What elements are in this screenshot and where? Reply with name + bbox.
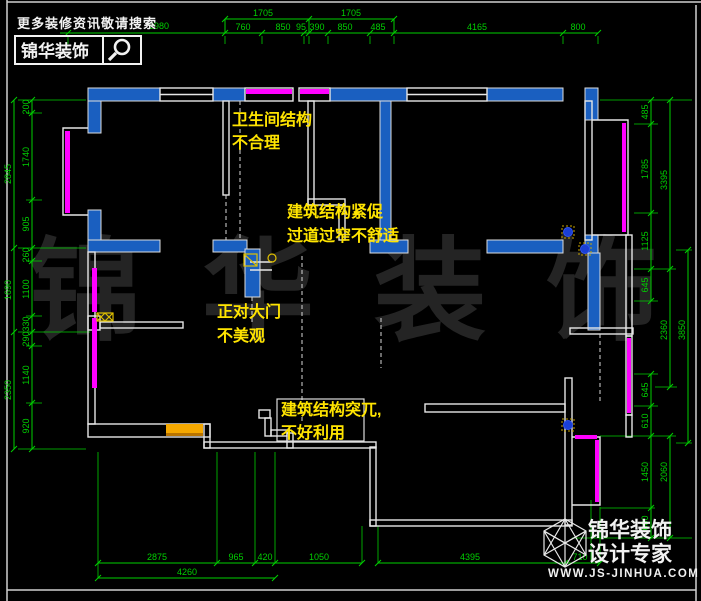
dim-label: 420 — [257, 552, 272, 562]
footer-brand: 锦华装饰 — [588, 518, 672, 542]
annotation-text: 建筑结构紧促 — [287, 202, 384, 221]
annotation-text: 过道过窄不舒适 — [287, 226, 399, 245]
dim-label: 920 — [21, 418, 31, 433]
dim-label: 1705 — [253, 8, 273, 18]
footer-tagline: 设计专家 — [588, 542, 673, 566]
dim-label: 200 — [21, 99, 31, 114]
dim-label: 965 — [228, 552, 243, 562]
dim-label: 645 — [640, 382, 650, 397]
dim-label: 1785 — [640, 159, 650, 179]
cabinet — [166, 424, 203, 436]
brand-name: 锦华装饰 — [21, 41, 89, 61]
annotation-text: 不好利用 — [281, 423, 345, 442]
dim-label: 2060 — [659, 462, 669, 482]
dim-label: 1690 — [3, 280, 13, 300]
dim-label: 1100 — [21, 279, 31, 298]
cad-floorplan-screenshot: 锦 华 装 饰 — [0, 0, 701, 601]
annotation-text: 卫生间结构 — [232, 110, 312, 129]
dim-label: 610 — [640, 413, 650, 428]
dim-label: 4260 — [177, 567, 197, 577]
dim-label: 1705 — [341, 8, 361, 18]
dim-label: 4165 — [467, 22, 487, 32]
dim-label: 2360 — [659, 320, 669, 340]
dim-label: 290 — [21, 331, 31, 346]
dim-label: 1450 — [640, 462, 650, 482]
dim-label: 330 — [21, 316, 31, 331]
annotation-text: 不合理 — [232, 133, 280, 152]
dim-label: 3850 — [677, 320, 687, 340]
dim-label: 905 — [21, 216, 31, 231]
dim-label: 260 — [21, 247, 31, 262]
floorplan-canvas: 锦 华 装 饰 — [0, 0, 701, 601]
search-tagline: 更多装修资讯敬请搜索 — [17, 16, 157, 31]
dim-label: 95 — [296, 22, 306, 32]
dim-label: 645 — [640, 277, 650, 292]
dim-label: 2845 — [3, 164, 13, 184]
dim-label: 1140 — [21, 365, 31, 384]
annotation-text: 不美观 — [217, 326, 265, 345]
annotation-text: 正对大门 — [217, 302, 281, 321]
dim-label: 850 — [275, 22, 290, 32]
dim-label: 2350 — [3, 380, 13, 400]
annotation-text: 建筑结构突兀, — [281, 400, 381, 419]
dim-label: 3395 — [659, 170, 669, 190]
dim-label: 485 — [640, 104, 650, 119]
dim-label: 1125 — [640, 231, 650, 250]
dim-label: 485 — [370, 22, 385, 32]
dim-label: 800 — [570, 22, 585, 32]
dim-label: 2875 — [147, 552, 167, 562]
dim-label: 760 — [235, 22, 250, 32]
footer-website: WWW.JS-JINHUA.COM — [548, 568, 699, 580]
dim-label: 850 — [337, 22, 352, 32]
dim-label: 1050 — [309, 552, 329, 562]
dim-label: 4395 — [460, 552, 480, 562]
dim-label: 390 — [309, 22, 324, 32]
dim-label: 1740 — [21, 147, 31, 167]
